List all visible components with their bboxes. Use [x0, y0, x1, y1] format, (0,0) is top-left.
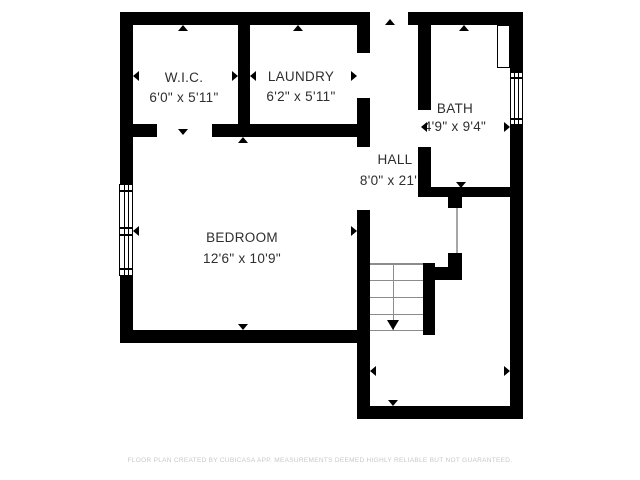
stair-tread-line [370, 263, 423, 265]
wall-marker-wic-top [178, 25, 188, 31]
window-pane-line [514, 73, 515, 124]
wall-marker-laundry-top [293, 25, 303, 31]
wall-marker-bedroom-top [238, 137, 248, 143]
window-frame-line [120, 268, 132, 270]
stair-tread-line [370, 314, 423, 316]
wall-marker-wic-left [133, 71, 139, 81]
wall-marker-bath-left [421, 122, 427, 132]
room-label-hall: HALL 8'0" x 21'1" [315, 149, 475, 191]
wall-marker-laundry-bottom [293, 129, 303, 135]
window-frame-line [120, 190, 132, 192]
wall-segment [357, 406, 523, 419]
wall-segment [448, 197, 462, 208]
wall-marker-wic-bottom [178, 129, 188, 135]
wall-segment [357, 98, 370, 147]
wall-marker-bedroom-right [351, 226, 357, 236]
wall-marker-lower-hall-right [504, 366, 510, 376]
wall-segment [212, 124, 370, 137]
window-frame-line [511, 118, 522, 120]
wall-segment [357, 12, 370, 53]
wall-marker-bath-bottom [456, 182, 466, 188]
floor-plan-canvas: W.I.C. 6'0" x 5'11" LAUNDRY 6'2" x 5'11"… [0, 0, 640, 480]
wall-marker-bath-top [459, 25, 469, 31]
stairs [370, 263, 423, 331]
stair-direction-arrow-icon [387, 320, 399, 330]
wall-marker-lower-hall-bottom [388, 400, 398, 406]
wall-segment [357, 210, 370, 419]
window-frame-line [120, 234, 132, 236]
window-pane-line [124, 185, 125, 275]
wall-segment [120, 330, 370, 343]
window-symbol [510, 72, 523, 125]
footer-disclaimer: FLOOR PLAN CREATED BY CUBICASA APP. MEAS… [0, 457, 640, 464]
window-symbol [119, 184, 133, 276]
wall-marker-laundry-right [351, 71, 357, 81]
wall-segment [120, 124, 157, 137]
room-name: BEDROOM [162, 227, 322, 248]
window-pane-line [518, 73, 519, 124]
door-leaf [497, 25, 510, 68]
room-name: HALL [315, 149, 475, 170]
room-label-bedroom: BEDROOM 12'6" x 10'9" [162, 227, 322, 269]
wall-marker-bedroom-left [133, 226, 139, 236]
wall-segment [238, 12, 250, 137]
window-frame-line [120, 227, 132, 229]
wall-marker-laundry-left [250, 71, 256, 81]
wall-segment [418, 187, 510, 197]
room-dimensions: 12'6" x 10'9" [162, 248, 322, 269]
stairwell-opening-line [456, 208, 458, 253]
wall-marker-lower-hall-left [370, 366, 376, 376]
stair-tread-line [370, 280, 423, 282]
wall-marker-hall-top [385, 19, 395, 25]
window-pane-line [128, 185, 129, 275]
wall-segment [418, 12, 431, 110]
wall-segment [120, 12, 133, 184]
wall-segment [423, 263, 435, 335]
wall-marker-bath-right [504, 122, 510, 132]
wall-marker-wic-right [232, 71, 238, 81]
window-frame-line [511, 77, 522, 79]
wall-marker-bedroom-bottom [238, 324, 248, 330]
stair-tread-line [370, 297, 423, 299]
